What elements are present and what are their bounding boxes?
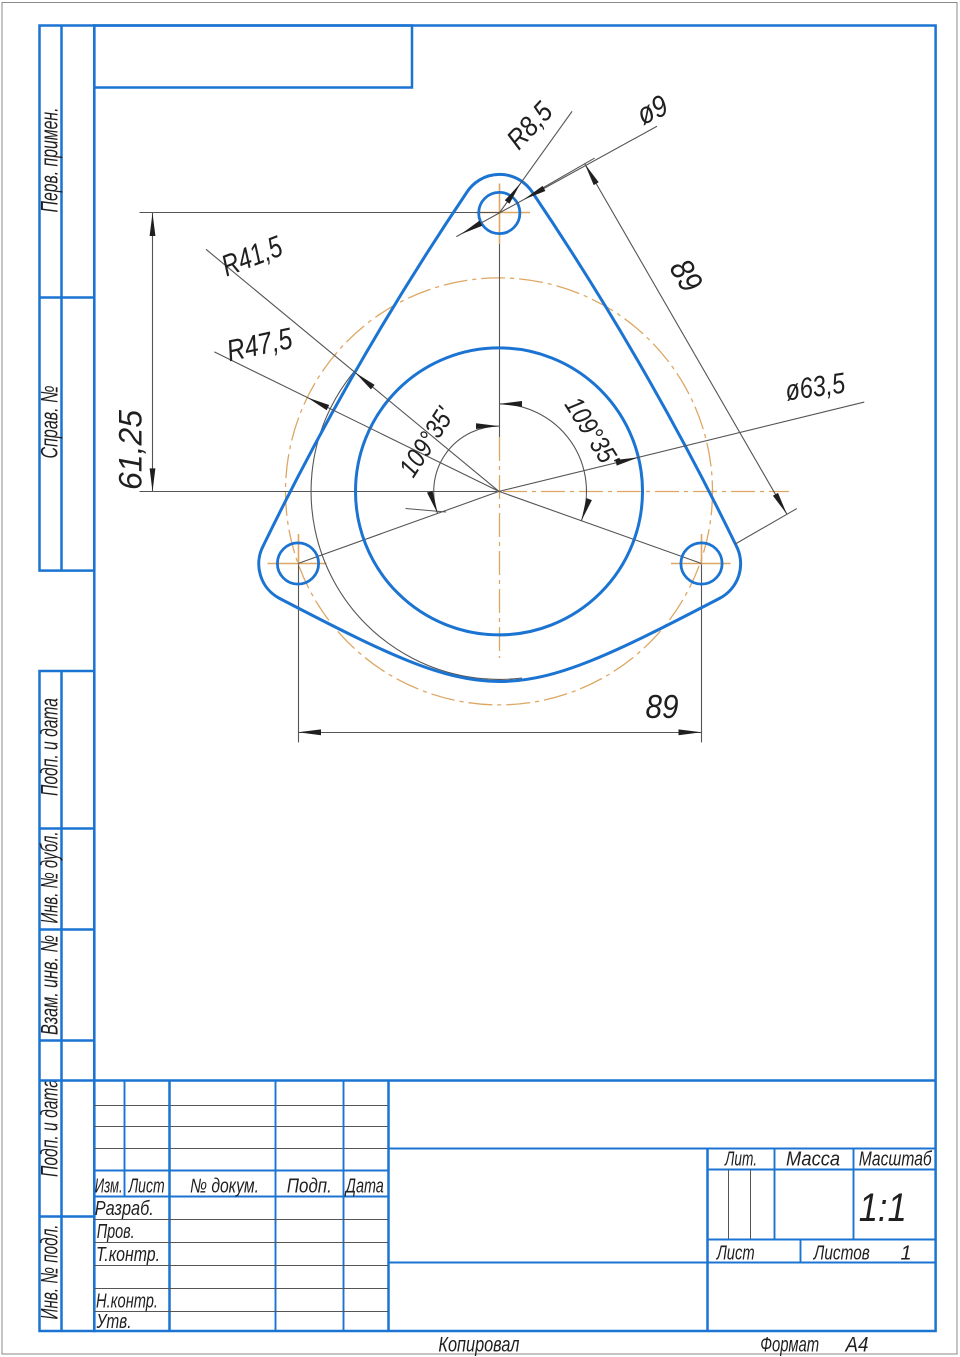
- svg-text:Подп.: Подп.: [287, 1176, 332, 1198]
- svg-text:Листов: Листов: [812, 1243, 870, 1265]
- svg-text:Инв. № подл.: Инв. № подл.: [37, 1225, 64, 1320]
- svg-text:А4: А4: [844, 1334, 869, 1357]
- svg-text:№ докум.: № докум.: [190, 1176, 259, 1198]
- svg-text:Лит.: Лит.: [724, 1149, 757, 1171]
- svg-text:1:1: 1:1: [859, 1186, 907, 1230]
- svg-text:Взам. инв. №: Взам. инв. №: [37, 935, 64, 1035]
- svg-text:1: 1: [900, 1243, 911, 1265]
- svg-text:Лист: Лист: [715, 1243, 754, 1265]
- svg-text:Копировал: Копировал: [438, 1334, 519, 1357]
- svg-text:Дата: Дата: [344, 1176, 383, 1198]
- svg-text:Перв. примен.: Перв. примен.: [37, 108, 64, 213]
- svg-text:Подп. и дата: Подп. и дата: [37, 1079, 64, 1177]
- svg-text:Изм.: Изм.: [95, 1176, 123, 1198]
- svg-text:Масса: Масса: [786, 1149, 840, 1171]
- svg-text:Разраб.: Разраб.: [95, 1197, 154, 1220]
- svg-text:Инв. № дубл.: Инв. № дубл.: [37, 832, 64, 924]
- svg-text:Формат: Формат: [760, 1334, 819, 1357]
- svg-text:Справ. №: Справ. №: [37, 386, 64, 459]
- svg-text:Утв.: Утв.: [96, 1310, 132, 1333]
- svg-text:61,25: 61,25: [113, 410, 149, 490]
- svg-text:Лист: Лист: [127, 1176, 164, 1198]
- svg-text:Т.контр.: Т.контр.: [96, 1243, 160, 1266]
- svg-text:89: 89: [646, 688, 679, 725]
- svg-text:Подп. и дата: Подп. и дата: [37, 698, 64, 796]
- svg-text:Масштаб: Масштаб: [859, 1149, 933, 1171]
- svg-text:Пров.: Пров.: [97, 1220, 135, 1243]
